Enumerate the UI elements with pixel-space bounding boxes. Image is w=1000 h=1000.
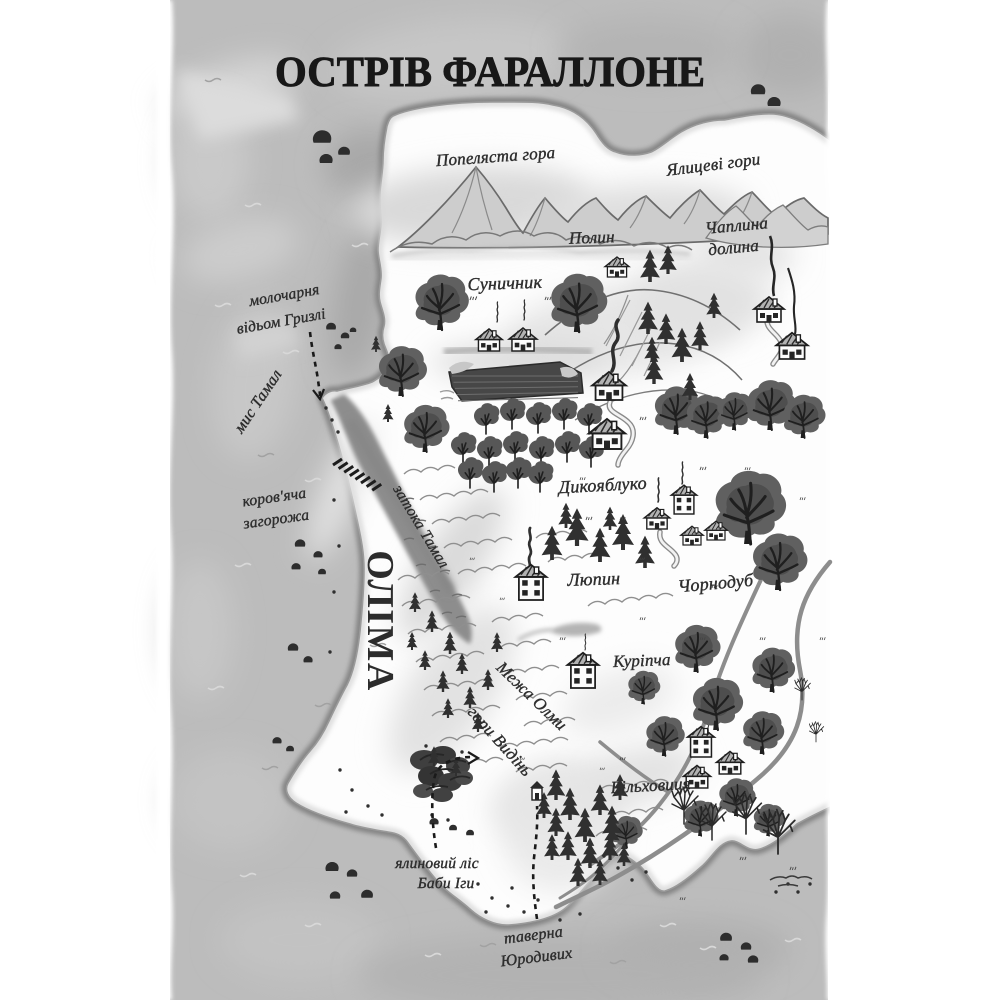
svg-text:ОСТРІВ ФАРАЛЛОНЕ: ОСТРІВ ФАРАЛЛОНЕ: [275, 49, 705, 96]
svg-text:Полин: Полин: [568, 227, 615, 248]
svg-text:ОЛІМА: ОЛІМА: [359, 550, 401, 692]
svg-text:Баби Іги: Баби Іги: [417, 875, 475, 892]
svg-text:Суничник: Суничник: [467, 272, 542, 295]
svg-text:Люпин: Люпин: [566, 568, 620, 590]
svg-text:ялиновий ліс: ялиновий ліс: [394, 855, 479, 872]
svg-text:Куріпча: Куріпча: [612, 650, 671, 671]
